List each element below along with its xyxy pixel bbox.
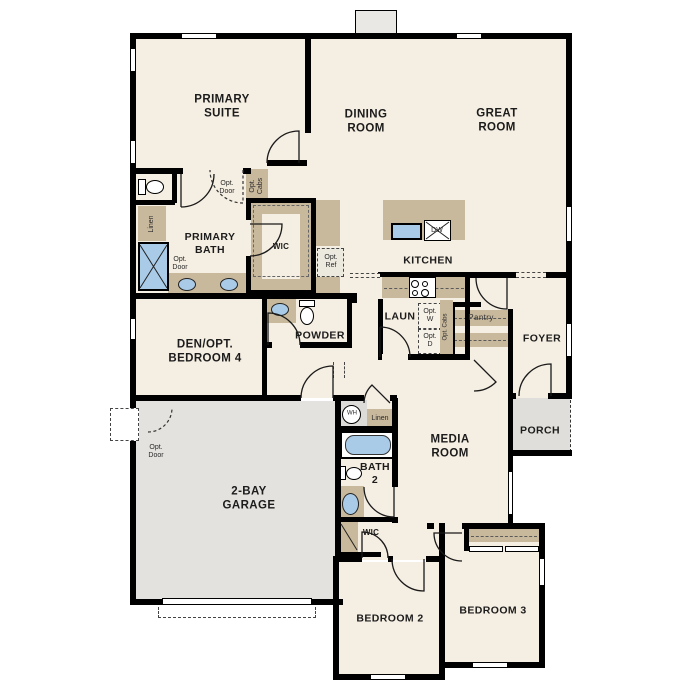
window [566,206,572,242]
room-label-bedroom2: BEDROOM 2 [356,612,423,625]
garage-door [162,598,312,605]
wall [333,556,339,680]
wall [130,200,175,205]
window [472,662,508,668]
wic-door-opening [246,220,251,256]
opt-washer-label: Opt. W [423,308,436,324]
opt-cabs-laundry-label: Opt. Cabs [443,313,450,340]
wall [539,523,545,668]
floor-plan: PRIMARY SUITE DINING ROOM GREAT ROOM PRI… [0,0,687,687]
room-label-wic-bedroom2: WIC [363,528,379,538]
window [566,323,572,357]
wall [470,272,516,278]
kitchen-wall-cabinet-upper [316,200,340,246]
powder-sink-icon [271,303,289,316]
wall [378,272,470,277]
closet-door-right [505,546,539,552]
room-label-pantry: Pantry [468,313,494,323]
pantry-shelf-lower [452,333,508,347]
linen-hall-label: Linen [371,415,388,423]
wall [348,293,357,303]
wall [408,354,470,360]
bath2-sink-icon [342,493,359,515]
room-label-bedroom3: BEDROOM 3 [459,604,526,617]
room-label-dining-room: DINING ROOM [345,108,388,137]
wall [546,272,572,278]
window [370,674,406,680]
wall [548,393,572,399]
stove-icon [409,277,436,298]
wall [426,556,445,562]
toilet-tank-powder [299,300,315,307]
bathtub-basin [345,435,391,455]
room-label-primary-suite: PRIMARY SUITE [194,93,249,122]
toilet-tank-primary [138,179,146,195]
room-label-media-room: MEDIA ROOM [430,433,469,462]
porch-open-edge [561,400,571,452]
wall [427,523,434,529]
opt-door-bath-label: Opt. Door [172,256,187,272]
wall [392,398,398,487]
opt-cabs-dining-label: Opt. Cabs [249,178,265,194]
wall [262,299,267,347]
toilet-icon-primary [146,180,164,194]
linen-bath-label: Linen [148,215,156,232]
wall [347,299,352,348]
closet-door-left [469,546,503,552]
vanity-sink-right-icon [220,278,238,291]
wall [130,395,301,401]
room-label-den-opt-bedroom4: DEN/OPT. BEDROOM 4 [168,338,241,367]
window [508,471,513,515]
room-label-primary-bath: PRIMARY BATH [185,231,236,257]
cased-opening-hall [333,362,345,378]
window [181,33,217,39]
wall [462,523,545,529]
toilet-icon-powder [300,307,314,325]
wall [333,556,362,562]
wall [267,160,307,166]
opt-door-garage-landing [110,408,139,441]
wall [335,395,341,560]
room-label-porch: PORCH [520,424,560,437]
window [130,48,136,72]
wall [300,342,352,348]
opt-door-garage-label: Opt. Door [148,444,163,460]
island-sink-icon [391,223,422,240]
room-label-laundry: LAUN [385,310,416,323]
wall [508,393,516,399]
wall [337,426,397,431]
cased-opening-kitchen [350,273,380,278]
wic2-shelf [340,522,358,552]
wall [508,309,513,398]
water-heater-label: WH [347,411,357,418]
room-label-powder: POWDER [295,329,345,342]
cased-opening-foyer [516,272,546,278]
room-label-great-room: GREAT ROOM [476,107,517,136]
dishwasher-label: DW [431,227,443,235]
window [130,318,136,340]
room-label-foyer: FOYER [523,332,561,345]
window [130,140,136,164]
wall [172,173,177,203]
room-label-wic-primary: WIC [273,242,289,252]
room-label-bath2: BATH 2 [360,461,390,487]
wall [388,556,393,562]
vanity-sink-left-icon [178,278,196,291]
wall [378,354,382,360]
wall [439,523,445,680]
bedroom3-closet-shelf [469,529,539,542]
shower-icon [138,242,169,291]
room-label-kitchen: KITCHEN [403,254,452,267]
room-label-garage: 2-BAY GARAGE [223,485,276,514]
opt-dryer-label: Opt. D [423,333,436,349]
window [456,33,482,39]
wall [378,299,383,354]
wall [262,347,267,400]
wall [335,517,397,522]
garage-door-swing [158,607,316,618]
wall [305,33,311,133]
opt-door-suite-label: Opt. Door [219,180,234,196]
opt-ref-label: Opt. Ref [324,254,337,270]
wall [243,168,251,174]
wall [464,523,469,551]
wall [508,450,572,456]
window [539,558,545,586]
